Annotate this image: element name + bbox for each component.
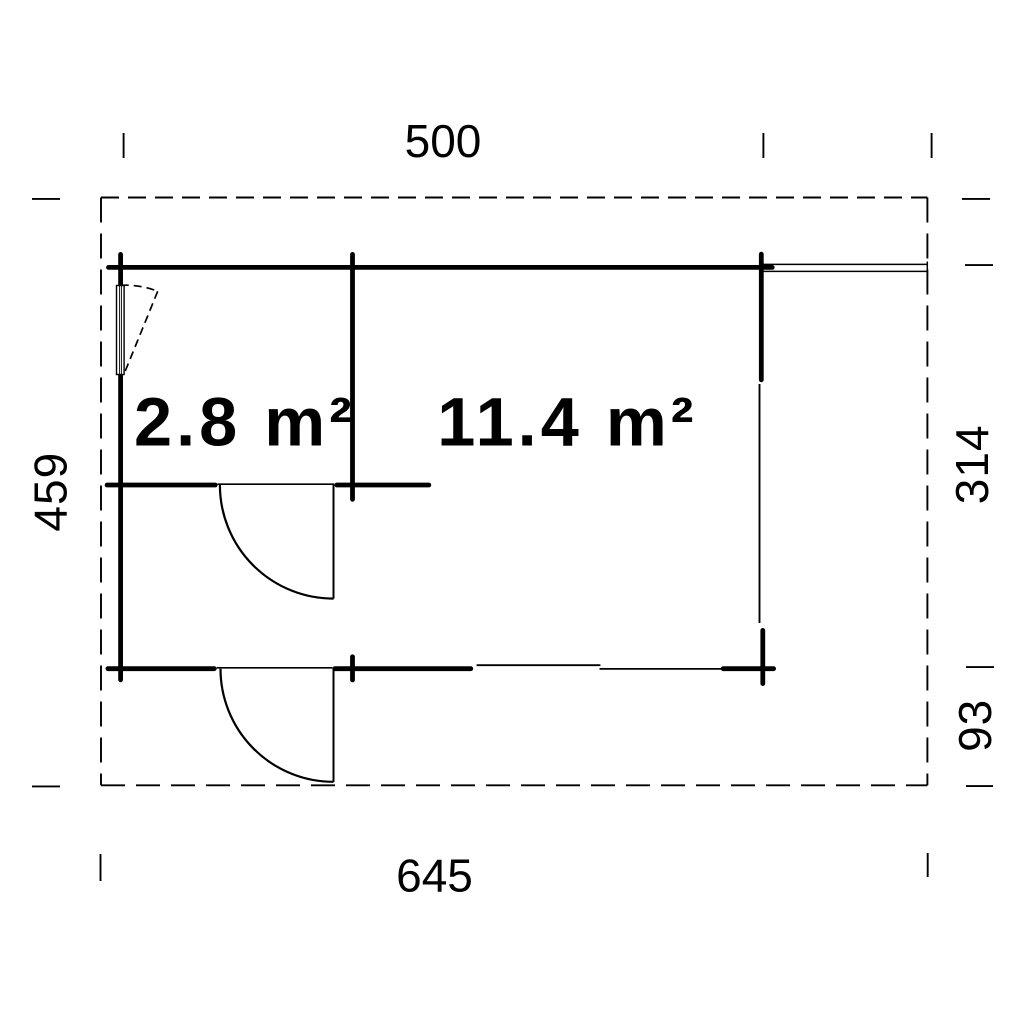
svg-text:93: 93 (949, 699, 1001, 752)
svg-text:2.8 m²: 2.8 m² (134, 383, 356, 460)
svg-text:459: 459 (24, 452, 76, 532)
svg-text:500: 500 (405, 115, 482, 167)
svg-text:314: 314 (946, 424, 998, 504)
svg-text:11.4 m²: 11.4 m² (437, 383, 697, 460)
svg-text:645: 645 (396, 850, 473, 902)
